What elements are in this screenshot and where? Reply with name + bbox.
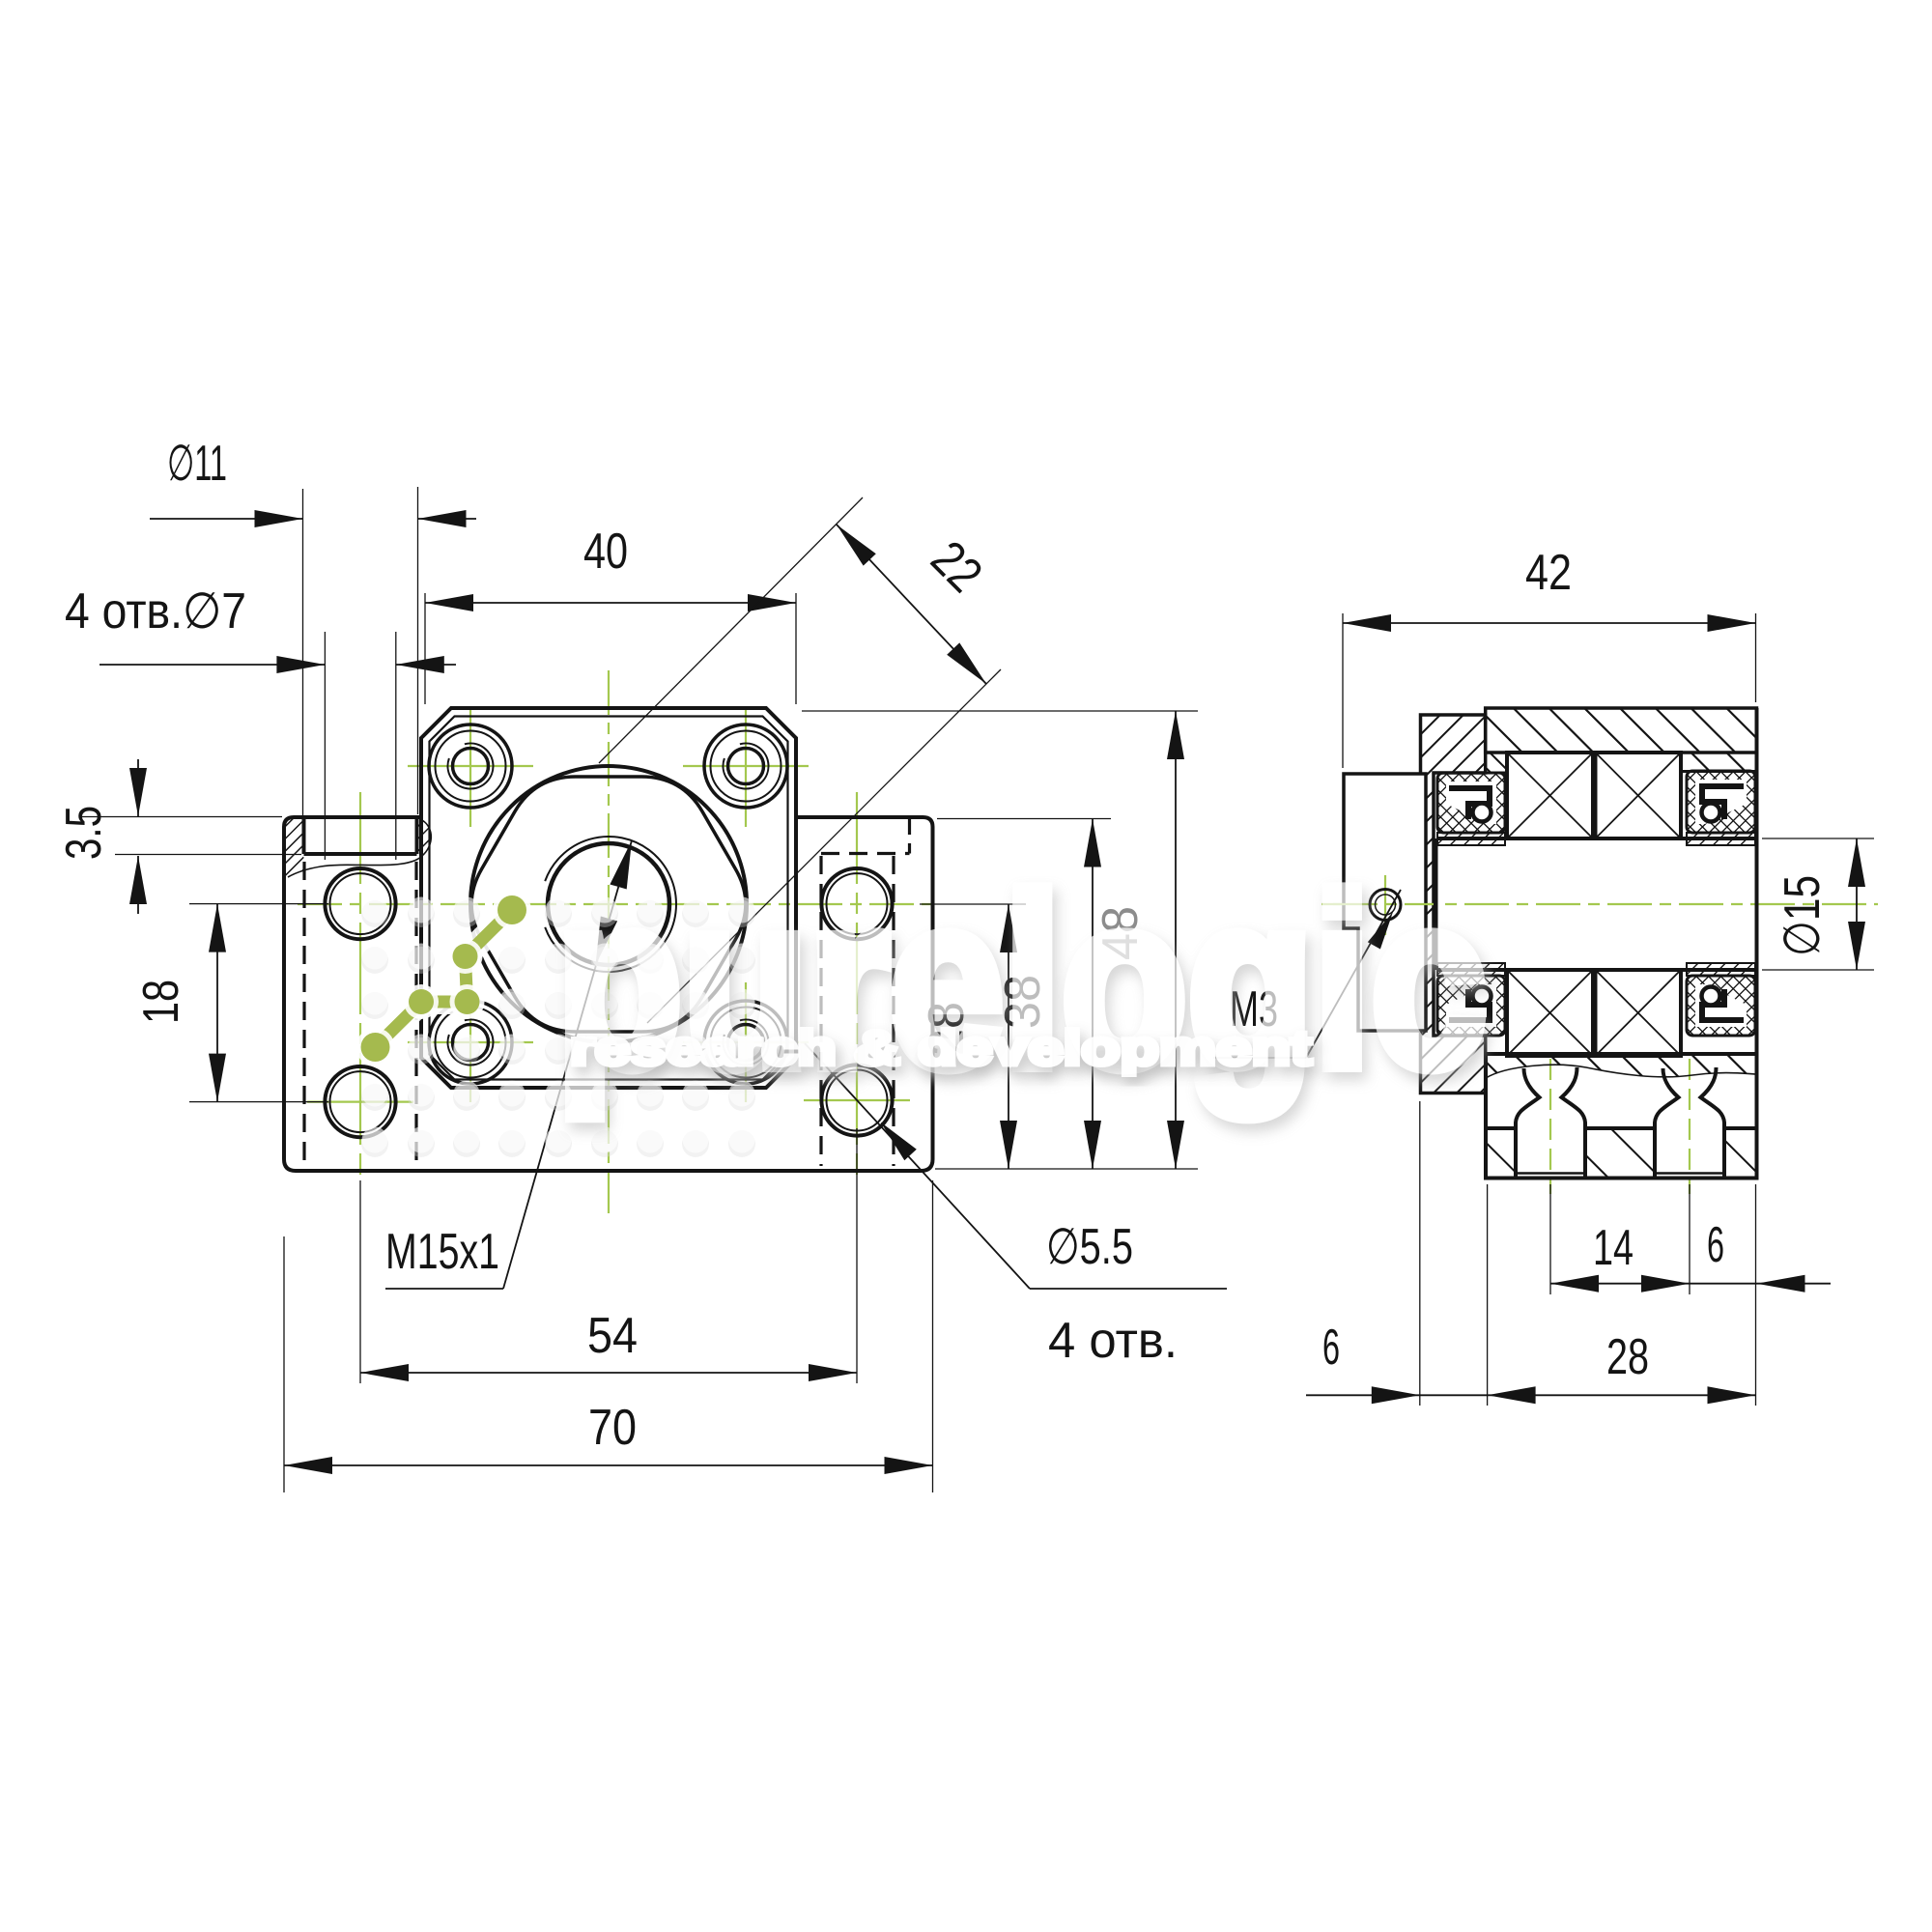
svg-text:6: 6	[1707, 1217, 1724, 1273]
svg-text:14: 14	[1593, 1220, 1634, 1276]
svg-text:3.5: 3.5	[56, 806, 112, 860]
svg-text:∅11: ∅11	[167, 436, 227, 492]
svg-text:70: 70	[588, 1400, 637, 1456]
svg-text:M15x1: M15x1	[385, 1224, 499, 1280]
svg-text:6: 6	[1322, 1320, 1340, 1376]
svg-text:∅5.5: ∅5.5	[1046, 1219, 1133, 1275]
svg-text:54: 54	[587, 1308, 638, 1364]
svg-text:4 отв.∅7: 4 отв.∅7	[65, 583, 246, 639]
svg-text:4 отв.: 4 отв.	[1048, 1313, 1178, 1369]
svg-text:28: 28	[1606, 1329, 1649, 1385]
svg-text:∅15: ∅15	[1775, 875, 1831, 956]
svg-text:purelogic: purelogic	[556, 846, 1486, 1118]
svg-text:research & development: research & development	[570, 1021, 1312, 1075]
svg-text:40: 40	[583, 524, 628, 580]
svg-text:18: 18	[133, 980, 189, 1024]
svg-text:42: 42	[1525, 545, 1572, 601]
